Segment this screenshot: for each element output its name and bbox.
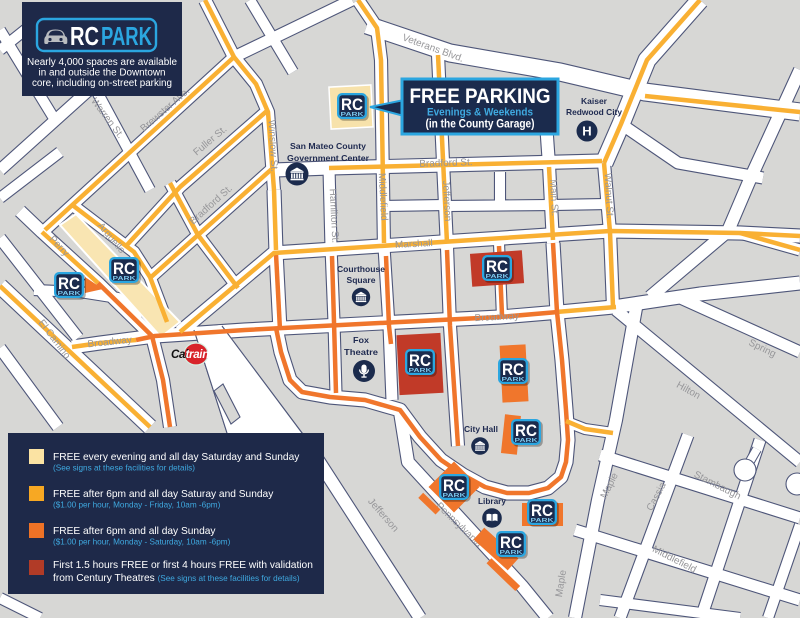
svg-text:Theatre: Theatre [344, 347, 378, 357]
svg-text:San Mateo County: San Mateo County [290, 141, 366, 151]
svg-text:FREE after 6pm and all day Sat: FREE after 6pm and all day Saturay and S… [53, 489, 274, 500]
svg-text:(in the County Garage): (in the County Garage) [426, 119, 535, 131]
svg-text:core, including on-street park: core, including on-street parking [32, 78, 172, 89]
svg-text:FREE PARKING: FREE PARKING [410, 85, 551, 108]
svg-text:Marshall: Marshall [395, 238, 433, 251]
svg-text:from Century Theatres (See sig: from Century Theatres (See signs at thes… [53, 573, 300, 584]
svg-text:Evenings & Weekends: Evenings & Weekends [427, 107, 533, 119]
svg-text:FREE after 6pm and all day Sun: FREE after 6pm and all day Sunday [53, 526, 216, 537]
svg-text:First 1.5 hours FREE or first: First 1.5 hours FREE or first 4 hours FR… [53, 560, 313, 571]
svg-text:Main St.: Main St. [547, 179, 560, 216]
svg-text:RC: RC [70, 21, 99, 51]
svg-text:Redwood City: Redwood City [566, 107, 622, 117]
svg-text:City Hall: City Hall [464, 424, 498, 434]
svg-text:Kaiser: Kaiser [581, 96, 608, 106]
svg-text:PARK: PARK [101, 21, 152, 51]
svg-text:FREE every evening and all day: FREE every evening and all day Saturday … [53, 452, 300, 463]
svg-text:Government Center: Government Center [287, 153, 370, 163]
svg-text:H: H [582, 124, 591, 139]
svg-text:Fox: Fox [353, 335, 369, 345]
svg-text:Jefferson: Jefferson [440, 180, 453, 221]
svg-text:($1.00 per hour, Monday - Satu: ($1.00 per hour, Monday - Saturday, 10am… [53, 538, 231, 547]
svg-text:Nearly 4,000 spaces are availa: Nearly 4,000 spaces are available [27, 57, 177, 68]
svg-text:in and outside the Downtown: in and outside the Downtown [39, 68, 166, 79]
svg-text:($1.00 per hour, Monday - Frid: ($1.00 per hour, Monday - Friday, 10am -… [53, 501, 221, 510]
svg-text:Bradford St.: Bradford St. [419, 157, 473, 170]
svg-text:(See signs at these facilities: (See signs at these facilities for detai… [53, 464, 195, 473]
svg-text:Square: Square [347, 275, 376, 285]
svg-text:Courthouse: Courthouse [337, 264, 385, 274]
svg-text:train: train [186, 349, 210, 361]
svg-text:Library: Library [478, 496, 506, 506]
svg-text:Broadway: Broadway [474, 311, 519, 324]
